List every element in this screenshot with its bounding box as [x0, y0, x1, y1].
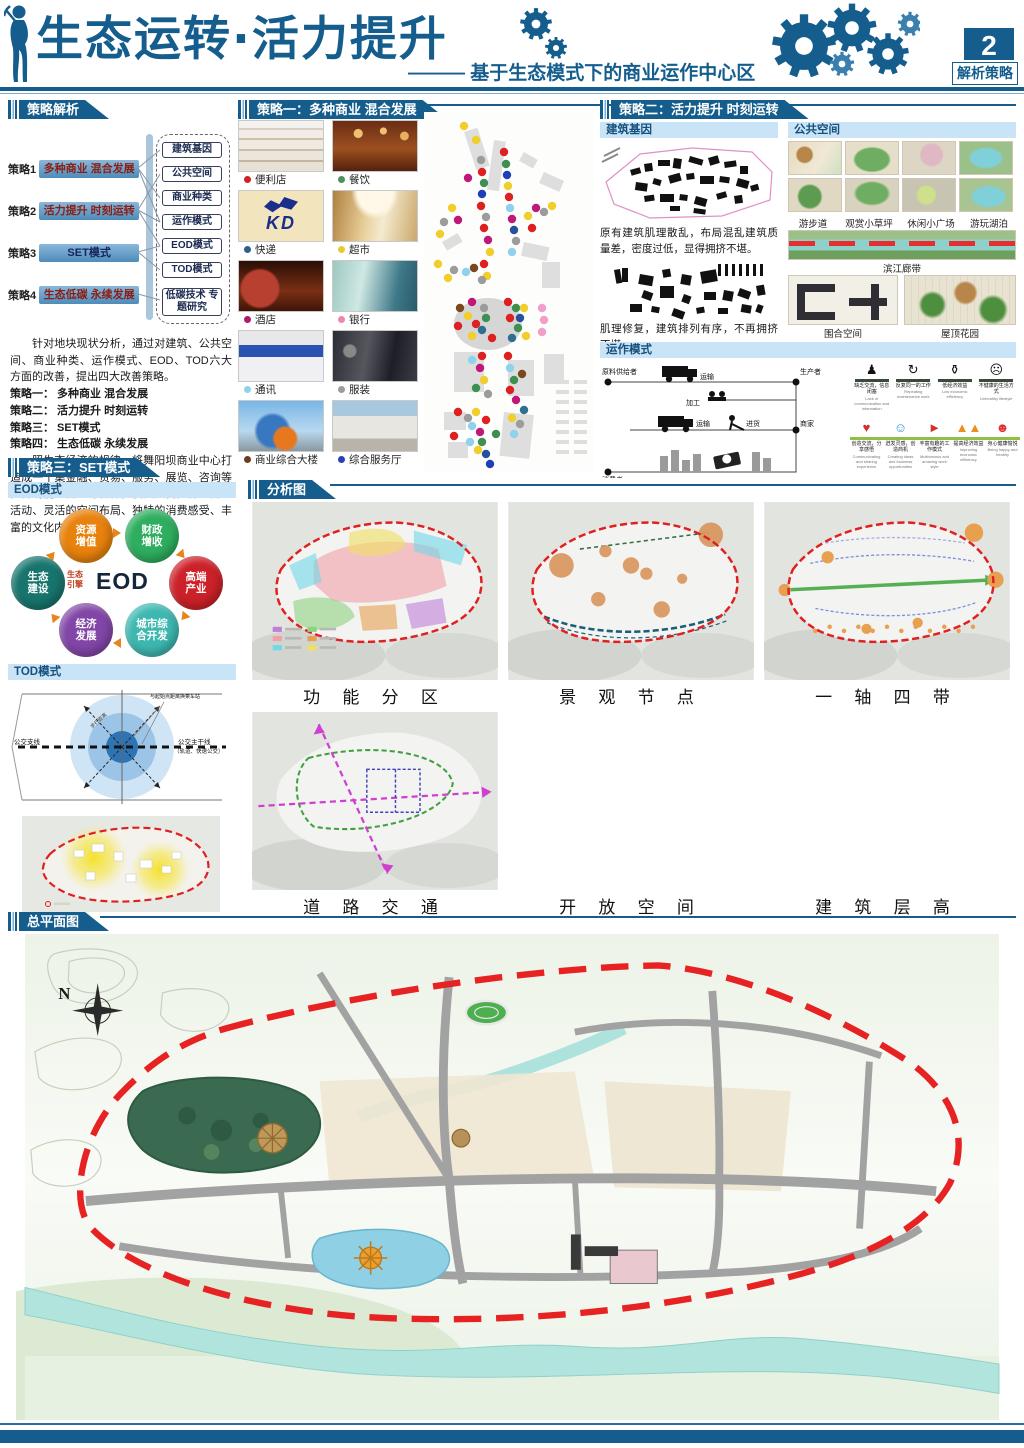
positive-item: ♥创造交流，分享感悟Communicating and sharing expe…: [850, 420, 883, 469]
eod-engine-label: 生态引擎: [66, 570, 84, 589]
poi-dot: [532, 204, 540, 212]
section-rule: [100, 916, 1016, 918]
poi-dot: [505, 193, 513, 201]
photo-image: [238, 400, 324, 452]
poi-dot: [477, 202, 485, 210]
photo-image: [332, 190, 418, 242]
poi-dot: [478, 276, 486, 284]
category-dot: [244, 456, 251, 463]
thumb-walkway: [788, 141, 842, 175]
svg-text:运输: 运输: [700, 372, 714, 381]
gear-cluster-large: [770, 2, 920, 86]
page-title: 生态运转·活力提升: [36, 0, 448, 69]
section-analysis: 分析图: [248, 480, 336, 499]
business-photo: 服装: [332, 330, 418, 397]
strategy-box: SET模式: [39, 244, 139, 262]
photo-caption: 综合服务厅: [332, 452, 418, 467]
positive-en: Creating ideas and business opportunitie…: [884, 454, 917, 469]
poi-dot: [478, 438, 486, 446]
aspect-box: 建筑基因: [162, 142, 222, 158]
analysis-map-landscape-nodes: 景 观 节 点: [508, 502, 754, 708]
ribbon-bars: [8, 458, 17, 477]
label-roof-garden: 屋顶花园: [904, 326, 1016, 340]
category-label: 通讯: [255, 382, 276, 397]
poi-dot: [516, 420, 524, 428]
negative-en: Repeating maintenance work: [894, 389, 934, 399]
category-label: 商业综合大楼: [255, 452, 318, 467]
poi-dot: [524, 212, 532, 220]
thumb-square: [902, 141, 956, 175]
poi-dot: [482, 416, 490, 424]
poi-dot: [450, 266, 458, 274]
poi-dot: [480, 260, 488, 268]
tod-diagram: 公交支线 公交主干线 （轨道、快速公交） 与起始点距离换乘车站 步行距离: [8, 684, 236, 810]
north-label: N: [58, 984, 70, 1003]
tod-station-label: 与起始点距离换乘车站: [150, 693, 200, 700]
poi-dot: [454, 216, 462, 224]
strategy-row: 策略4生态低碳 永续发展: [8, 286, 139, 304]
poi-dot: [468, 332, 476, 340]
photo-image: [238, 120, 324, 172]
poi-dot: [466, 438, 474, 446]
section-title: 策略解析: [19, 100, 109, 119]
aspect-box: 公共空间: [162, 166, 222, 182]
poi-dot: [486, 460, 494, 468]
poi-dot: [548, 202, 556, 210]
poi-dot: [480, 224, 488, 232]
negative-zh: 不健康的生活方式: [977, 383, 1017, 396]
positive-icon: ☺: [894, 420, 907, 436]
poi-dot: [486, 248, 494, 256]
map-caption: 一 轴 四 带: [764, 683, 1010, 708]
eod-node: 财政增收: [125, 509, 179, 563]
eod-node: 城市综合开发: [125, 603, 179, 657]
subsection-building-gene: 建筑基因: [600, 122, 778, 138]
subsection-tod: TOD模式: [8, 664, 236, 680]
category-dot: [338, 316, 345, 323]
photo-image: KD: [238, 190, 324, 242]
poi-dot: [472, 408, 480, 416]
eod-node: 高端产业: [169, 556, 223, 610]
category-dot: [338, 386, 345, 393]
category-dot: [338, 456, 345, 463]
page-label-badge: 解析策略: [952, 62, 1018, 85]
photo-caption: 银行: [332, 312, 418, 327]
photo-caption: 便利店: [238, 172, 324, 187]
category-dot: [338, 176, 345, 183]
photo-caption: 酒店: [238, 312, 324, 327]
poi-dot: [500, 148, 508, 156]
footer-thin-line: [0, 1423, 1024, 1425]
thumb-lawn: [845, 141, 899, 175]
poi-dot: [480, 304, 488, 312]
poi-dot: [450, 432, 458, 440]
ribbon-bars: [8, 912, 17, 931]
header-divider-thin: [0, 93, 1024, 94]
poi-dot: [468, 356, 476, 364]
photo-image: [332, 400, 418, 452]
lake-pavilion: [354, 1241, 387, 1274]
positive-en: Improving economic efficiency: [952, 447, 985, 462]
negative-item: ⚱低经济效益Low economic efficiency: [935, 362, 975, 411]
positive-zh: 丰富有趣的工作模式: [918, 441, 951, 454]
subsection-eod: EOD模式: [8, 482, 236, 498]
analysis-map-axis-belts: 一 轴 四 带: [764, 502, 1010, 708]
svg-text:消费者: 消费者: [602, 475, 623, 478]
positive-icon: ▲▲: [956, 420, 982, 436]
category-dot: [338, 246, 345, 253]
poi-dot: [472, 384, 480, 392]
label-walkway: 游步道: [788, 216, 838, 230]
section-title: 总平面图: [19, 912, 109, 931]
business-photo-grid: 便利店餐饮KD快递超市酒店银行通讯服装商业综合大楼综合服务厅: [238, 120, 418, 467]
eod-node: 经济发展: [59, 603, 113, 657]
business-photo: 银行: [332, 260, 418, 327]
strategy-row: 策略3SET模式: [8, 244, 139, 262]
svg-text:生产者: 生产者: [800, 367, 821, 376]
poi-dot: [510, 226, 518, 234]
aspect-box: 商业种类: [162, 190, 222, 206]
section-title: 策略三：SET模式: [19, 458, 160, 477]
label-lake: 游玩湖泊: [962, 216, 1016, 230]
tod-right-label-1: 公交主干线: [178, 737, 211, 746]
poi-dot: [506, 204, 514, 212]
paragraph-1: 针对地块现状分析，通过对建筑、公共空间、商业种类、运作模式、EOD、TOD六大方…: [10, 336, 232, 386]
poi-dot: [488, 334, 496, 342]
gear-cluster-small: [520, 8, 580, 62]
svg-text:进货: 进货: [746, 419, 760, 428]
business-photo: 餐饮: [332, 120, 418, 187]
positive-item: ►丰富有趣的工作模式Multivarious and amazing work …: [918, 420, 951, 469]
poi-dot: [460, 122, 468, 130]
page-number-badge: 2: [962, 26, 1016, 62]
poi-dot: [468, 298, 476, 306]
negative-en: Low economic efficiency: [935, 389, 975, 399]
poster-page: 生态运转·活力提升 ——— 基于生态模式下的商业运作中心区 2 解析策略 策略解…: [0, 0, 1024, 1448]
ribbon-bars: [238, 100, 247, 119]
poi-dot: [540, 208, 548, 216]
strategy-line-2: 策略二： 活力提升 时刻运转: [10, 403, 232, 420]
svg-text:商家: 商家: [800, 419, 814, 428]
analysis-map-zoning: 功 能 分 区: [252, 502, 498, 708]
poi-dot: [478, 168, 486, 176]
subsection-operation: 运作模式: [600, 342, 1016, 358]
poi-dot: [510, 376, 518, 384]
header-divider: [0, 87, 1024, 91]
poi-dot: [464, 174, 472, 182]
business-photo: 商业综合大楼: [238, 400, 324, 467]
poi-dot: [472, 320, 480, 328]
poi-dot: [528, 224, 536, 232]
poi-dot: [464, 312, 472, 320]
poi-dot: [436, 230, 444, 238]
poi-dot: [482, 314, 490, 322]
poi-dot: [470, 264, 478, 272]
poi-dot: [538, 328, 546, 336]
category-label: 超市: [349, 242, 370, 257]
strategy-list: 策略1多种商业 混合发展策略2活力提升 时刻运转策略3SET模式策略4生态低碳 …: [8, 130, 148, 320]
tod-left-label: 公交支线: [14, 737, 41, 746]
poi-dot: [478, 326, 486, 334]
poi-dot: [464, 414, 472, 422]
poi-dot: [477, 156, 485, 164]
positive-icon: ♥: [863, 420, 871, 436]
poi-dot: [456, 304, 464, 312]
poi-dot: [520, 406, 528, 414]
poi-dot: [462, 268, 470, 276]
figure-silhouette: [4, 2, 36, 86]
photo-caption: 快递: [238, 242, 324, 257]
map-caption: 开 放 空 间: [508, 893, 754, 918]
section-strategy-analysis: 策略解析: [8, 100, 109, 119]
label-riverside-corridor: 滨江廊带: [788, 261, 1016, 275]
operation-positives: ♥创造交流，分享感悟Communicating and sharing expe…: [850, 420, 1018, 469]
school-field: [466, 1001, 507, 1025]
subsection-public-space: 公共空间: [788, 122, 1016, 138]
map-caption: 道 路 交 通: [252, 893, 498, 918]
poi-dot: [504, 298, 512, 306]
analysis-map-traffic: 道 路 交 通: [252, 712, 498, 918]
category-dot: [244, 246, 251, 253]
business-photo: 综合服务厅: [332, 400, 418, 467]
ribbon-bars: [248, 480, 257, 499]
poi-dot: [482, 213, 490, 221]
eod-center-label: EOD: [96, 568, 149, 595]
aspect-box: TOD模式: [162, 262, 222, 278]
positive-zh: 迸发灵感，创造商机: [884, 441, 917, 454]
poi-dot: [478, 190, 486, 198]
strategy-box: 生态低碳 永续发展: [39, 286, 139, 304]
poi-dot: [510, 430, 518, 438]
eod-arrow: [113, 638, 121, 648]
poi-dot: [472, 136, 480, 144]
section-strategy-one: 策略一：多种商业 混合发展: [238, 100, 447, 119]
figure-ground-after: [600, 260, 778, 322]
strategy-prefix: 策略3: [8, 245, 36, 261]
negative-item: ♟缺乏交流，信息闭塞Lack of communication and info…: [852, 362, 892, 411]
master-plan-map: N: [16, 934, 1008, 1420]
poi-dot: [476, 428, 484, 436]
eod-arrow: [113, 528, 121, 538]
strategy-line-1: 策略一： 多种商业 混合发展: [10, 386, 232, 403]
poi-dot: [444, 274, 452, 282]
poi-dot: [474, 446, 482, 454]
negative-icon: ↻: [908, 362, 919, 378]
plaza-west: [320, 1071, 595, 1185]
thumb-enclosed-space: [788, 275, 898, 325]
thumb-walkway-2: [788, 178, 842, 212]
poi-dot: [492, 430, 500, 438]
label-lawn: 观赏小草坪: [838, 216, 900, 230]
analysis-map-building-height: 建 筑 层 高: [764, 712, 1010, 918]
section-master-plan: 总平面图: [8, 912, 109, 931]
negative-item: ↻反复同一的工作Repeating maintenance work: [894, 362, 934, 411]
poi-dot: [504, 182, 512, 190]
photo-image: [332, 120, 418, 172]
aspect-box: 运作模式: [162, 214, 222, 230]
section-title: 策略二：活力提升 时刻运转: [611, 100, 809, 119]
footer-bar: [0, 1430, 1024, 1443]
category-label: 便利店: [255, 172, 287, 187]
category-dot: [244, 386, 251, 393]
strategy-line-4: 策略四： 生态低碳 永续发展: [10, 436, 232, 453]
poi-dot: [506, 364, 514, 372]
poi-dot: [514, 324, 522, 332]
aspect-box: 低碳技术 专题研究: [162, 288, 222, 316]
tod-right-label-2: （轨道、快速公交）: [174, 747, 224, 755]
poi-dot: [508, 414, 516, 422]
poi-dot: [448, 204, 456, 212]
positive-en: Multivarious and amazing work style: [918, 454, 951, 469]
poi-dot: [522, 332, 530, 340]
label-square: 休闲小广场: [900, 216, 962, 230]
section-title: 策略一：多种商业 混合发展: [249, 100, 447, 119]
poi-dot: [506, 314, 514, 322]
thumb-lawn-2: [845, 178, 899, 212]
public-space-thumbs: [788, 141, 1016, 212]
poi-dot: [504, 352, 512, 360]
eod-arrow: [178, 611, 191, 624]
negative-icon: ⚱: [949, 362, 960, 378]
poi-dot: [508, 334, 516, 342]
negative-zh: 缺乏交流，信息闭塞: [852, 383, 892, 396]
operation-negatives: ♟缺乏交流，信息闭塞Lack of communication and info…: [852, 362, 1016, 411]
map-caption: 建 筑 层 高: [764, 893, 1010, 918]
category-label: 酒店: [255, 312, 276, 327]
riverside-corridor-strip: [788, 230, 1016, 260]
eod-node: 生态建设: [11, 556, 65, 610]
category-dot: [244, 176, 251, 183]
positive-icon: ►: [928, 420, 941, 436]
strategy-box: 多种商业 混合发展: [39, 160, 139, 178]
tod-heat-map: [22, 816, 220, 912]
category-dot: [244, 316, 251, 323]
positive-item: ▲▲提高经济效益Improving economic efficiency: [952, 420, 985, 469]
poi-dot: [476, 364, 484, 372]
poi-dot: [480, 179, 488, 187]
svg-text:原料供给者: 原料供给者: [602, 367, 637, 376]
positive-icon: ☻: [996, 420, 1010, 436]
aspect-list: 建筑基因公共空间商业种类运作模式EOD模式TOD模式低碳技术 专题研究: [162, 130, 222, 330]
thumb-roof-garden: [904, 275, 1016, 325]
strategy-line-3: 策略三： SET模式: [10, 420, 232, 437]
poi-dot: [508, 215, 516, 223]
poi-dot: [454, 322, 462, 330]
label-enclosed-space: 围合空间: [788, 326, 898, 340]
poi-dot: [502, 160, 510, 168]
svg-text:运输: 运输: [696, 419, 710, 428]
kd-logo: KD: [239, 195, 323, 234]
photo-caption: 通讯: [238, 382, 324, 397]
photo-image: [332, 330, 418, 382]
strategy-row: 策略1多种商业 混合发展: [8, 160, 139, 178]
poi-dot: [482, 450, 490, 458]
poi-dot: [478, 352, 486, 360]
poi-dot: [512, 304, 520, 312]
ribbon-bars: [600, 100, 609, 119]
negative-en: Lack of communication and information: [852, 396, 892, 411]
building-gene-caption-1: 原有建筑肌理散乱，布局混乱建筑质量差，密度过低，显得拥挤不堪。: [600, 226, 778, 258]
ribbon-bars: [8, 100, 17, 119]
positive-en: Being happy and healthy: [986, 447, 1019, 457]
poi-dot: [508, 248, 516, 256]
negative-icon: ♟: [866, 362, 878, 378]
poi-dot: [518, 370, 526, 378]
section-strategy-three: 策略三：SET模式: [8, 458, 160, 477]
eod-node: 资源增值: [59, 509, 113, 563]
positive-item: ☺迸发灵感，创造商机Creating ideas and business op…: [884, 420, 917, 469]
poi-dot: [506, 386, 514, 394]
poi-dot: [520, 304, 528, 312]
photo-image: [332, 260, 418, 312]
poi-dot: [503, 171, 511, 179]
poi-dot: [484, 390, 492, 398]
aspect-box: EOD模式: [162, 238, 222, 254]
negative-icon: ☹: [989, 362, 1003, 378]
photo-image: [238, 260, 324, 312]
operation-flow-diagram: 运输原料供给者生产者加工运输进货商家消费者: [600, 360, 848, 478]
business-photo: 超市: [332, 190, 418, 257]
eod-diagram: EOD 生态引擎 资源增值财政增收高端产业城市综合开发经济发展生态建设: [8, 502, 236, 660]
thumb-square-2: [902, 178, 956, 212]
business-photo: 通讯: [238, 330, 324, 397]
section-rule: [330, 484, 1016, 486]
strategy-prefix: 策略1: [8, 161, 36, 177]
poi-dot: [540, 316, 548, 324]
poi-dot: [512, 237, 520, 245]
thumb-lake: [959, 141, 1013, 175]
thumb-lake-2: [959, 178, 1013, 212]
photo-image: [238, 330, 324, 382]
poi-dot: [480, 376, 488, 384]
poi-dot: [454, 408, 462, 416]
strategy-prefix: 策略2: [8, 203, 36, 219]
public-space-labels: 游步道 观赏小草坪 休闲小广场 游玩湖泊: [788, 216, 1016, 230]
poi-dot: [516, 314, 524, 322]
category-label: 服装: [349, 382, 370, 397]
poi-dot: [434, 260, 442, 268]
poi-dot: [468, 422, 476, 430]
poi-dot: [440, 218, 448, 226]
positive-item: ☻身心健康愉悦Being happy and healthy: [986, 420, 1019, 469]
section-title: 分析图: [259, 480, 336, 499]
analysis-map-open-space: 开 放 空 间: [508, 712, 754, 918]
photo-caption: 餐饮: [332, 172, 418, 187]
category-label: 快递: [255, 242, 276, 257]
photo-caption: 服装: [332, 382, 418, 397]
business-photo: 酒店: [238, 260, 324, 327]
map-caption: 功 能 分 区: [252, 683, 498, 708]
business-photo: 便利店: [238, 120, 324, 187]
figure-ground-before: [600, 142, 778, 224]
category-label: 综合服务厅: [349, 452, 402, 467]
positive-en: Communicating and sharing experience: [850, 454, 883, 469]
poi-dot: [484, 236, 492, 244]
strategy-row: 策略2活力提升 时刻运转: [8, 202, 139, 220]
positive-zh: 创造交流，分享感悟: [850, 441, 883, 454]
poi-dot: [538, 304, 546, 312]
page-subtitle: ——— 基于生态模式下的商业运作中心区: [408, 58, 755, 85]
business-photo: KD快递: [238, 190, 324, 257]
section-strategy-two: 策略二：活力提升 时刻运转: [600, 100, 809, 119]
photo-caption: 超市: [332, 242, 418, 257]
photo-caption: 商业综合大楼: [238, 452, 324, 467]
category-label: 餐饮: [349, 172, 370, 187]
category-label: 银行: [349, 312, 370, 327]
svg-text:加工: 加工: [686, 398, 700, 407]
strategy-box: 活力提升 时刻运转: [39, 202, 139, 220]
poi-dot: [512, 396, 520, 404]
